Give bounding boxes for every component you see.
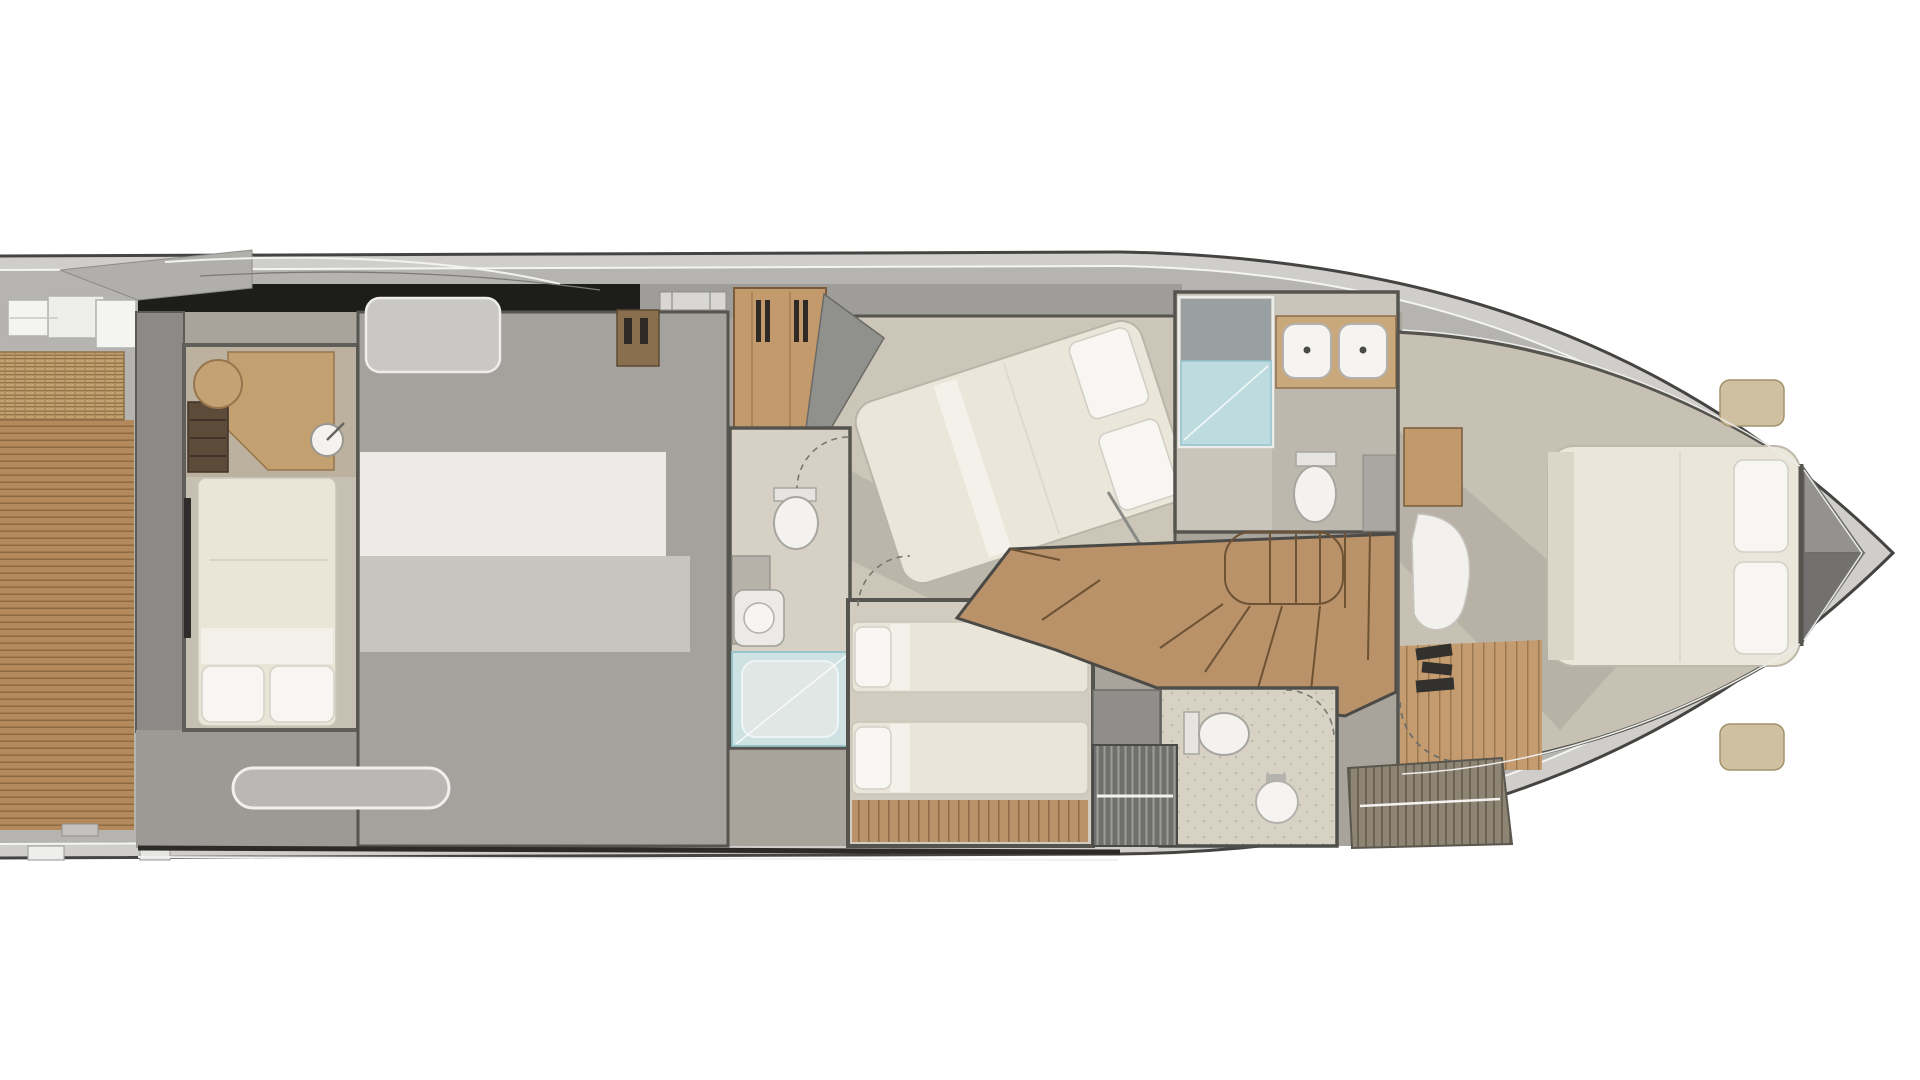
nightstand (1720, 724, 1784, 770)
aft-cabin-bed (198, 478, 336, 726)
anchor-locker-upper (1804, 468, 1864, 553)
pillow (202, 666, 264, 722)
aft-cabin-porthole (184, 498, 191, 638)
hanger (794, 300, 799, 342)
teak-planking (0, 420, 134, 830)
engine-vent-grate (1093, 745, 1177, 846)
hanger (756, 300, 761, 342)
nightstand (1720, 380, 1784, 426)
master-cabin (1398, 332, 1802, 772)
hanger (803, 300, 808, 342)
pillow (1734, 460, 1788, 552)
twin-washbasin-counter (1276, 316, 1396, 388)
pillow (270, 666, 334, 722)
screenshot-canvas (0, 0, 1920, 1080)
cockpit-cabinet (617, 310, 659, 366)
transom-step-outline (233, 768, 449, 808)
vanity-block (1363, 455, 1396, 531)
pillow (855, 727, 891, 789)
side-door-strip (660, 292, 726, 310)
twin-bed-lower (852, 722, 1088, 794)
toilet (1184, 712, 1249, 755)
shower (732, 652, 848, 746)
wicker-sunpad (0, 352, 124, 420)
pillow (1734, 562, 1788, 654)
washbasin (734, 590, 784, 646)
toilet (774, 488, 818, 549)
master-island-bed (1548, 446, 1800, 666)
aft-cabin (184, 345, 358, 730)
aft-cabin-stool (194, 360, 242, 408)
floor-plan-svg (0, 0, 1920, 1080)
toilet (1294, 452, 1336, 522)
shower (1179, 297, 1273, 447)
garage-hatch-white (360, 452, 666, 556)
partition-wall (1093, 690, 1160, 746)
cockpit-settee-shadow (366, 298, 500, 372)
guest-bathroom (730, 428, 850, 748)
midship-bathroom (1175, 292, 1398, 532)
tv-cabinet (1404, 428, 1462, 506)
twin-cabin-wood-strip (852, 800, 1088, 842)
pillow (855, 627, 891, 687)
garage-hatch-light (360, 556, 690, 652)
hanger (765, 300, 770, 342)
